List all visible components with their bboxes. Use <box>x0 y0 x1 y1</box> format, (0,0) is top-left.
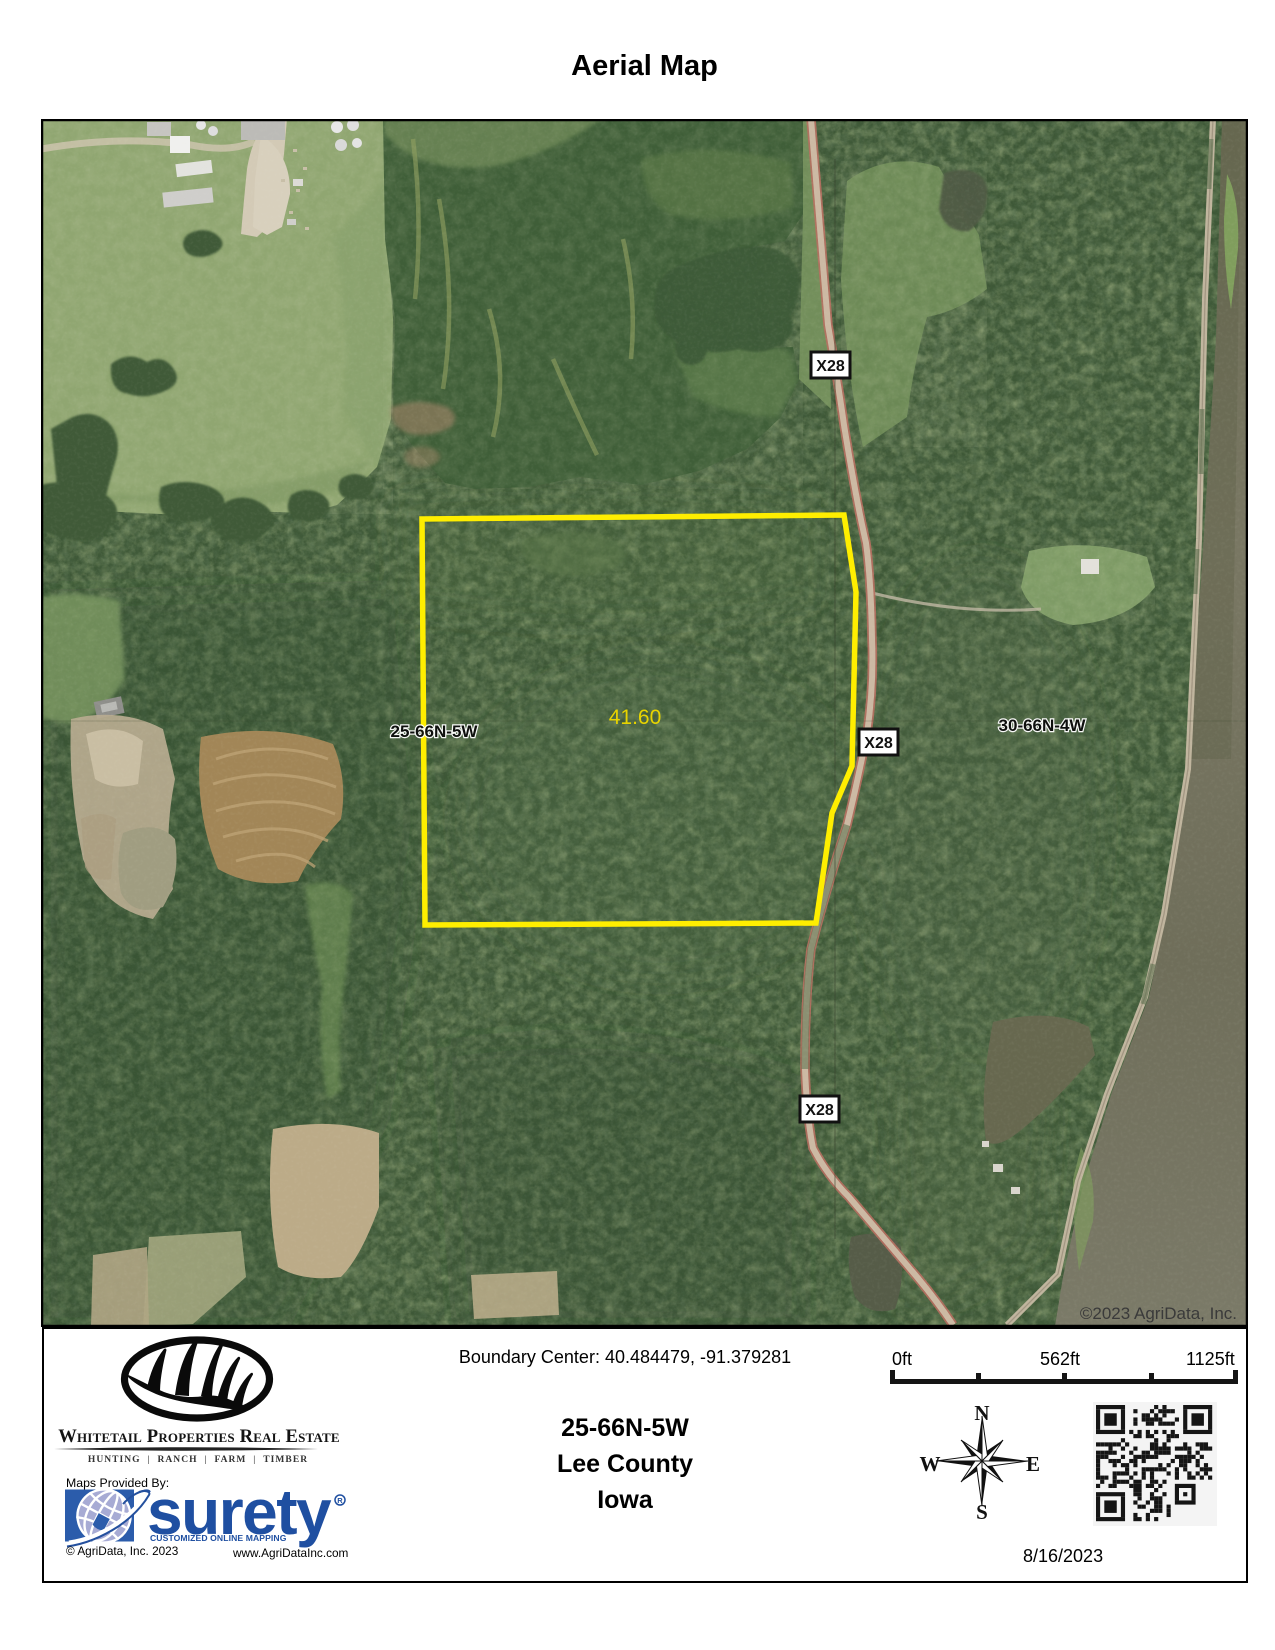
svg-text:25-66N-5W: 25-66N-5W <box>391 722 479 741</box>
svg-text:E: E <box>1026 1452 1040 1476</box>
svg-text:CUSTOMIZED ONLINE MAPPING: CUSTOMIZED ONLINE MAPPING <box>150 1533 287 1543</box>
svg-text:R: R <box>337 1496 343 1505</box>
svg-text:W: W <box>920 1452 941 1476</box>
svg-text:©2023 AgriData, Inc.: ©2023 AgriData, Inc. <box>1080 1304 1237 1323</box>
svg-text:30-66N-4W: 30-66N-4W <box>999 716 1087 735</box>
svg-text:X28: X28 <box>816 358 845 375</box>
svg-text:X28: X28 <box>864 735 893 752</box>
svg-text:S: S <box>976 1500 988 1524</box>
svg-text:41.60: 41.60 <box>609 706 662 729</box>
svg-text:N: N <box>974 1401 989 1425</box>
svg-text:X28: X28 <box>805 1102 834 1119</box>
